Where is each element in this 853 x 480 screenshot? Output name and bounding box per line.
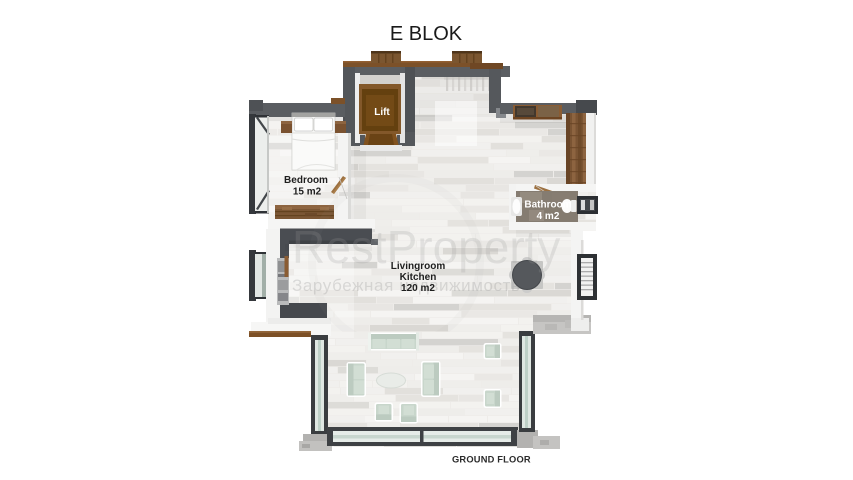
svg-text:E BLOK: E BLOK (390, 23, 463, 45)
svg-text:Lift: Lift (374, 107, 390, 118)
svg-text:15 m2: 15 m2 (293, 187, 322, 198)
svg-text:120 m2: 120 m2 (401, 283, 435, 294)
svg-text:Kitchen: Kitchen (400, 272, 437, 283)
svg-text:Livingroom: Livingroom (391, 261, 446, 272)
svg-text:GROUND FLOOR: GROUND FLOOR (452, 455, 531, 465)
svg-text:Bathroom: Bathroom (524, 200, 571, 211)
svg-text:Bedroom: Bedroom (284, 175, 328, 186)
